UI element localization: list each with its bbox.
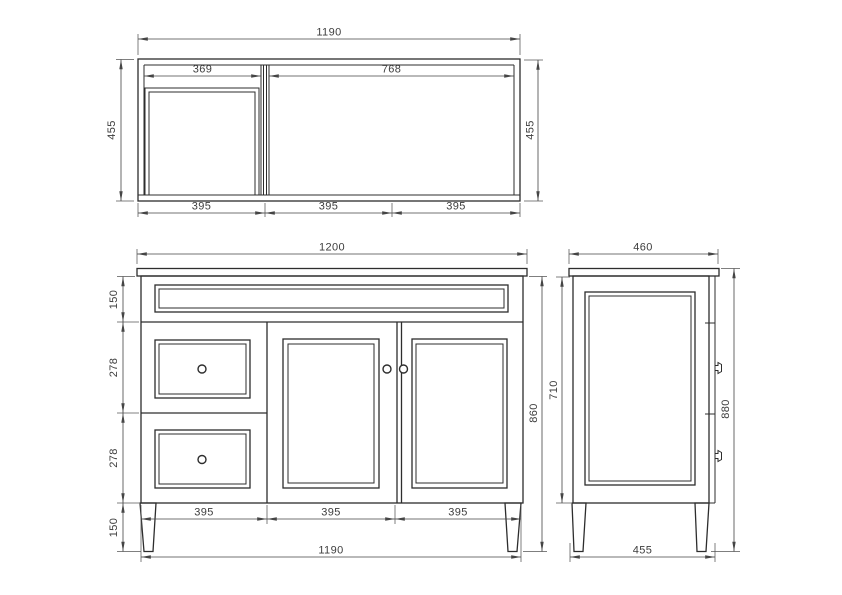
top-view <box>138 59 520 201</box>
dim-sideview-counter-depth: 460 <box>569 242 718 265</box>
dim-topview-depth-right: 455 <box>524 60 543 201</box>
topview-sink-box-inner <box>149 92 255 195</box>
dim-sideview-body-height: 710 <box>548 277 571 503</box>
side-view <box>569 269 722 552</box>
vanity-cabinet-drawing: 1190 455 455 369 768 395 395 395 <box>0 0 842 595</box>
frontview-left-door <box>283 339 391 488</box>
dim-label-frontview-segment-1: 395 <box>194 507 214 519</box>
dim-label-topview-segment-2: 395 <box>319 201 339 213</box>
technical-drawing-page: 1190 455 455 369 768 395 395 395 <box>0 0 842 595</box>
sideview-front-leg <box>572 503 586 552</box>
side-knob-profile-icon <box>715 451 722 462</box>
sideview-side-panel-outer <box>585 292 695 485</box>
side-view-dimensions: 460 710 880 455 <box>548 242 740 563</box>
dim-frontview-counter-width: 1200 <box>137 242 527 265</box>
dim-label-sideview-base-depth: 455 <box>633 545 653 557</box>
dim-label-topview-depth-right: 455 <box>525 120 537 140</box>
door-panel-inner <box>416 344 503 483</box>
dim-label-frontview-segment-3: 395 <box>448 507 468 519</box>
dim-label-sideview-body-height: 710 <box>548 380 560 400</box>
frontview-right-door <box>400 339 508 488</box>
dim-label-frontview-top-rail: 150 <box>108 290 120 310</box>
sideview-carcass <box>573 276 709 503</box>
dim-label-frontview-cabinet-height: 860 <box>528 403 540 423</box>
dim-frontview-top-rail: 150 <box>108 277 139 323</box>
door-panel-inner <box>288 344 374 483</box>
dim-label-frontview-cabinet-width: 1190 <box>318 545 343 557</box>
topview-countertop-outline <box>138 59 520 201</box>
dim-label-topview-right-opening: 768 <box>382 64 402 76</box>
frontview-left-leg <box>140 503 156 552</box>
dim-label-sideview-counter-depth: 460 <box>633 242 653 254</box>
front-view-dimensions: 1200 150 278 278 150 395 395 <box>108 242 547 563</box>
top-view-dimensions: 1190 455 455 369 768 395 395 395 <box>106 27 543 218</box>
sideview-back-leg <box>695 503 709 552</box>
dim-label-topview-segment-3: 395 <box>446 201 466 213</box>
dim-label-frontview-upper-drawer: 278 <box>108 358 120 378</box>
frontview-right-leg <box>505 503 521 552</box>
dim-frontview-leg-height: 150 <box>108 503 141 552</box>
frontview-partition-lines <box>141 322 523 503</box>
door-knob-icon <box>383 365 391 373</box>
side-knob-profile-icon <box>715 363 722 374</box>
dim-frontview-lower-drawer: 278 <box>108 413 139 503</box>
frontview-cabinet-body <box>141 276 523 503</box>
dim-label-topview-segment-1: 395 <box>192 201 212 213</box>
dim-topview-front-segments: 395 395 395 <box>138 201 520 218</box>
frontview-lower-drawer <box>155 430 250 488</box>
dim-label-topview-depth-left: 455 <box>106 120 118 140</box>
dim-label-sideview-overall-height: 880 <box>720 399 732 419</box>
dim-topview-depth-left: 455 <box>106 60 134 202</box>
frontview-upper-drawer <box>155 340 250 398</box>
dim-label-frontview-leg-height: 150 <box>108 518 120 538</box>
dim-frontview-upper-drawer: 278 <box>108 322 139 413</box>
topview-center-divider <box>261 65 269 195</box>
frontview-top-panel-inner <box>159 289 504 308</box>
dim-frontview-cabinet-height: 860 <box>523 277 547 552</box>
drawer-knob-icon <box>198 365 206 373</box>
extension-lines <box>116 60 134 202</box>
dim-label-topview-overall-width: 1190 <box>316 27 341 39</box>
topview-carcass-lines <box>138 65 520 195</box>
dim-topview-overall-width: 1190 <box>138 27 520 56</box>
door-panel-outer <box>412 339 507 488</box>
sideview-countertop <box>569 269 719 277</box>
dim-label-topview-left-opening: 369 <box>193 64 213 76</box>
drawer-knob-icon <box>198 456 206 464</box>
extension-lines <box>117 277 139 323</box>
sideview-side-panel-inner <box>589 296 691 481</box>
dim-label-frontview-segment-2: 395 <box>321 507 341 519</box>
sideview-door-front-edge <box>705 276 715 503</box>
door-panel-outer <box>283 339 379 488</box>
dim-frontview-door-segments: 395 395 395 <box>141 505 521 524</box>
frontview-countertop <box>137 269 527 277</box>
door-knob-icon <box>400 365 408 373</box>
dim-label-frontview-lower-drawer: 278 <box>108 448 120 468</box>
dim-label-frontview-counter-width: 1200 <box>319 242 345 254</box>
dim-sideview-base-depth: 455 <box>570 543 715 562</box>
topview-sink-box-outer <box>145 88 259 195</box>
